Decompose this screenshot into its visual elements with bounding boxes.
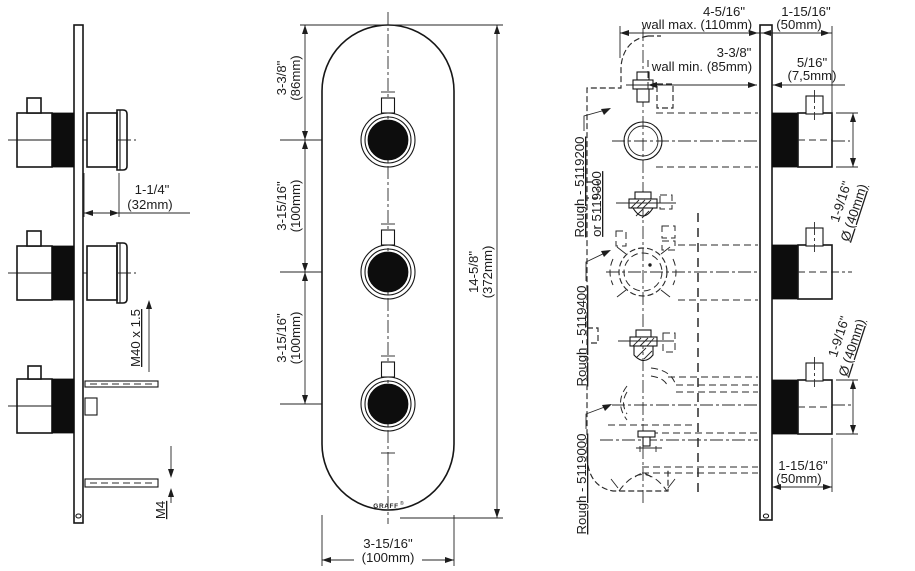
- left-view-valve-3: [17, 366, 158, 487]
- left-view-valve-1: [17, 98, 127, 170]
- thread-callout: M40 x 1.5: [128, 300, 152, 372]
- rough-number-bottom: Rough - 5119000: [574, 434, 589, 535]
- front-view: GRAFF ® 3-3/8" (86mm) 3-15/16" (100mm) 3…: [274, 12, 503, 566]
- dim-100mm-upper-mm-label: (100mm): [288, 180, 303, 233]
- dim-wall-min: 3-3/8" wall min. (85mm): [648, 45, 757, 93]
- rough-thermo-stem: [616, 192, 676, 218]
- dim-wall-max-mm-label: wall max. (110mm): [641, 17, 752, 32]
- dim-knob-depth-mm-label: (50mm): [776, 471, 821, 486]
- dim-100mm-upper-in-label: 3-15/16": [274, 181, 289, 231]
- left-view-valve-2: [17, 231, 127, 303]
- rough-volume-stem: [618, 330, 675, 361]
- left-side-view: 1-1/4" (32mm) M40 x 1.5 M4: [8, 25, 190, 523]
- dim-handle-projection: 1-1/4" (32mm): [84, 173, 190, 217]
- dim-width-mm-label: (100mm): [362, 550, 415, 565]
- dim-86mm-in-label: 3-3/8": [274, 60, 289, 95]
- dim-372mm-mm-label: (372mm): [480, 246, 495, 299]
- dim-trim-depth-mm-label: (50mm): [776, 17, 821, 32]
- registered-mark: ®: [400, 500, 404, 507]
- dim-wall-min-in-label: 3-3/8": [717, 45, 752, 60]
- left-view-plate: [74, 25, 83, 523]
- brand-logo: GRAFF: [373, 503, 398, 510]
- rough-label-thermo: Rough - 5119200 or 5119300: [572, 108, 611, 237]
- thread-label: M40 x 1.5: [128, 309, 143, 367]
- dim-100mm-lower-in-label: 3-15/16": [274, 313, 289, 363]
- rough-number-mid: Rough - 5119400: [574, 286, 589, 387]
- rough-label-mid: Rough - 5119400: [574, 250, 611, 386]
- dim-plate-gap-mm-label: (7,5mm): [787, 68, 836, 83]
- rough-number-thermo-line2: or 5119300: [589, 171, 604, 237]
- dim-width-in-label: 3-15/16": [363, 536, 413, 551]
- dim-32mm-mm-label: (32mm): [127, 197, 172, 212]
- side-handle-3: [772, 357, 832, 434]
- handle-side-1: [87, 113, 117, 167]
- rough-label-bottom: Rough - 5119000: [574, 404, 612, 534]
- dim-wall-min-mm-label: wall min. (85mm): [651, 59, 752, 74]
- dim-86mm-mm-label: (86mm): [288, 55, 303, 100]
- spec-sheet-drawing: 1-1/4" (32mm) M40 x 1.5 M4: [0, 0, 915, 571]
- side-handle-1: [772, 90, 832, 167]
- dim-372mm-in-label: 14-5/8": [466, 251, 481, 293]
- dim-plate-gap: 5/16" (7,5mm): [772, 55, 845, 88]
- screw-label: M4: [153, 501, 168, 519]
- rough-number-thermo-line1: Rough - 5119200: [572, 137, 587, 238]
- technical-drawing-canvas: 1-1/4" (32mm) M40 x 1.5 M4: [0, 0, 915, 571]
- dim-32mm-in-label: 1-1/4": [135, 182, 170, 197]
- dim-knob-dia-upper: 1-9/16" Ø (40mm): [827, 113, 870, 243]
- dim-knob-depth: 1-15/16" (50mm): [772, 438, 832, 492]
- side-view-plate: [760, 25, 772, 520]
- wall-side-view: 1-15/16" (50mm) 5/16" (7,5mm) 1-9/16" Ø …: [760, 4, 870, 520]
- side-handle-2: [772, 222, 832, 299]
- handle-side-2: [87, 246, 117, 300]
- dim-100mm-lower-mm-label: (100mm): [288, 312, 303, 365]
